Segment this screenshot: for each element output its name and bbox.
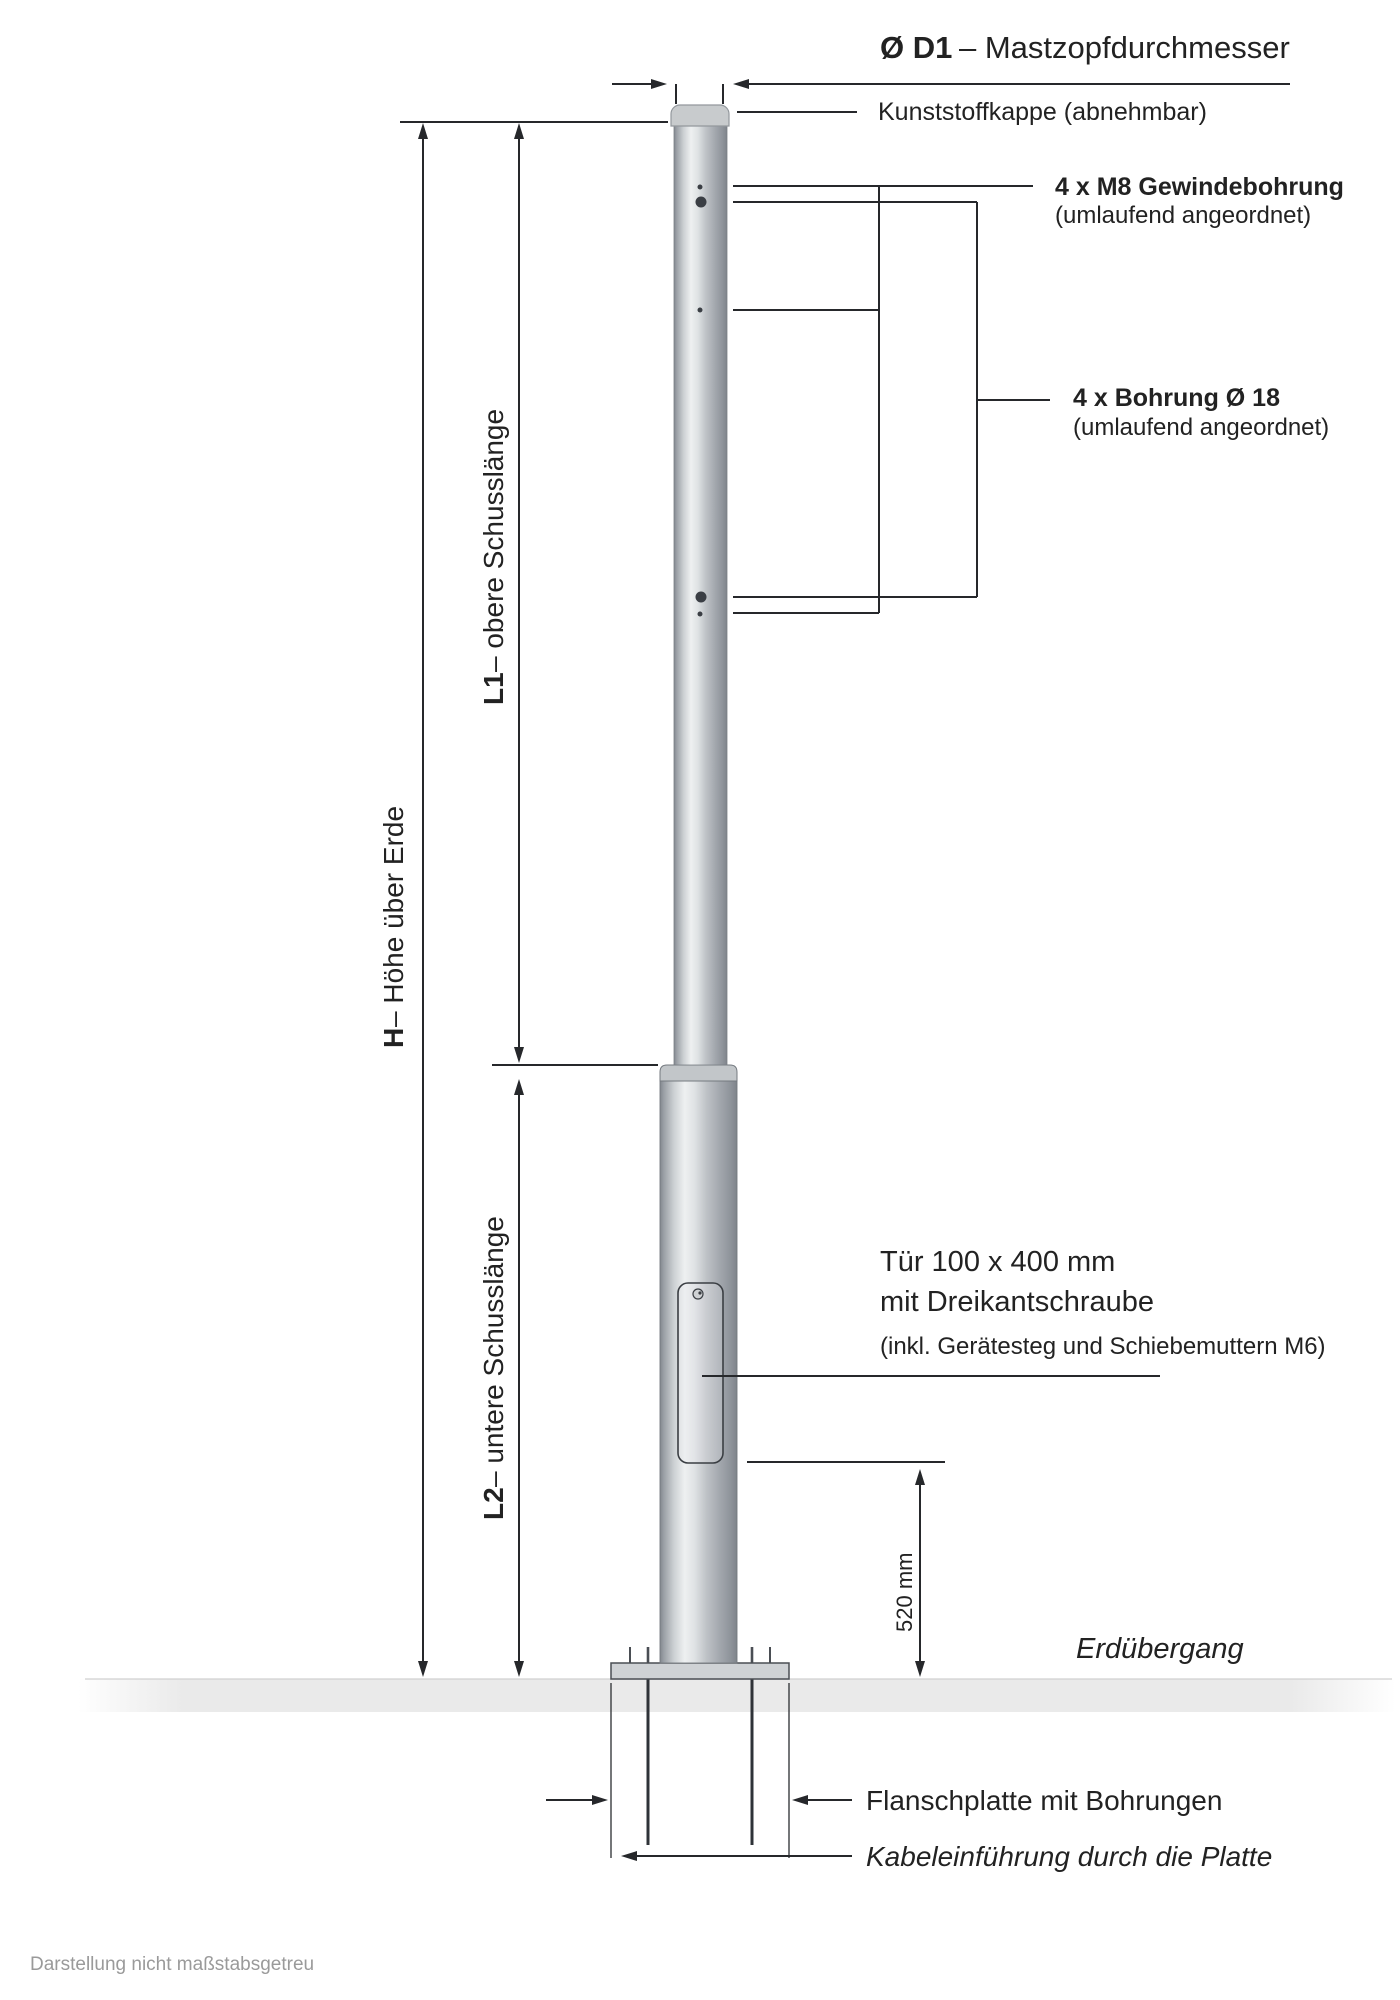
dim520-arrowhead-down <box>915 1661 925 1677</box>
service-door <box>678 1283 723 1463</box>
flange-arrowhead-left-pointing <box>792 1795 808 1805</box>
d1-arrowhead-left-pointing <box>733 79 749 89</box>
diagram-canvas: Ø D1 – Mastzopfdurchmesser Kunststoffkap… <box>0 0 1400 2000</box>
d1-arrowhead-right-pointing <box>651 79 667 89</box>
plastic-cap <box>671 105 729 126</box>
dim520-label: 520 mm <box>892 1553 917 1632</box>
ground-transition-label: Erdübergang <box>1076 1633 1244 1665</box>
cable-label: Kabeleinführung durch die Platte <box>866 1841 1272 1872</box>
m8-label-sub: (umlaufend angeordnet) <box>1055 202 1311 229</box>
door-label-line3: (inkl. Gerätesteg und Schiebemuttern M6) <box>880 1333 1326 1360</box>
door-label-line1: Tür 100 x 400 mm <box>880 1246 1115 1278</box>
l2-dimension-label: L2 – untere Schusslänge <box>478 1216 509 1520</box>
h-label-rest: – Höhe über Erde <box>378 806 409 1027</box>
bore-label-title: 4 x Bohrung Ø 18 <box>1073 384 1280 412</box>
m8-label-title: 4 x M8 Gewindebohrung <box>1055 173 1344 201</box>
l1-label-rest: – obere Schusslänge <box>478 409 509 672</box>
d1-title-rest: – Mastzopfdurchmesser <box>959 30 1290 65</box>
cable-arrowhead-left-pointing <box>621 1851 637 1861</box>
cable-label-group: Kabeleinführung durch die Platte <box>621 1841 1272 1872</box>
h-dimension-label: H – Höhe über Erde <box>378 806 409 1048</box>
scale-footnote: Darstellung nicht maßstabsgetreu <box>30 1954 314 1975</box>
dimension-520: 520 mm <box>747 1462 945 1677</box>
flange-label: Flanschplatte mit Bohrungen <box>866 1785 1222 1816</box>
ground <box>78 1679 1396 1712</box>
l2-label-bold: L2 <box>478 1487 509 1520</box>
l2-label-rest: – untere Schusslänge <box>478 1216 509 1487</box>
dim520-label-group: 520 mm <box>892 1553 917 1632</box>
l2-arrowhead-down <box>514 1661 524 1677</box>
bore-label-group: 4 x Bohrung Ø 18 (umlaufend angeordnet) <box>733 202 1329 597</box>
m8-hole-mid <box>698 308 703 313</box>
dimension-d1: Ø D1 – Mastzopfdurchmesser <box>612 30 1290 104</box>
ground-band <box>78 1679 1396 1712</box>
flange-arrowhead-right-pointing <box>592 1795 608 1805</box>
mast <box>660 105 737 1663</box>
dimension-h: H – Höhe über Erde <box>378 123 428 1677</box>
h-label-bold: H <box>378 1028 409 1048</box>
bore-hole-bottom <box>696 592 707 603</box>
flange-plate-body <box>611 1663 789 1679</box>
door-screw <box>693 1289 703 1299</box>
door-label-group: Tür 100 x 400 mm mit Dreikantschraube (i… <box>702 1246 1326 1376</box>
bore-label-sub: (umlaufend angeordnet) <box>1073 414 1329 441</box>
dimension-l2: L2 – untere Schusslänge <box>478 1079 524 1677</box>
h-arrowhead-down <box>418 1661 428 1677</box>
m8-hole-top <box>698 185 703 190</box>
l1-arrowhead-down <box>514 1047 524 1063</box>
cap-label-text: Kunststoffkappe (abnehmbar) <box>878 98 1207 126</box>
mast-spec-diagram: Ø D1 – Mastzopfdurchmesser Kunststoffkap… <box>0 0 1400 2000</box>
door-screw-center <box>698 1291 701 1294</box>
m8-hole-bottom <box>698 612 703 617</box>
joint-collar <box>660 1065 737 1081</box>
dimension-l1: L1 – obere Schusslänge <box>478 123 524 1063</box>
d1-title-bold: Ø D1 <box>880 30 952 65</box>
l1-dimension-label: L1 – obere Schusslänge <box>478 409 509 705</box>
bore-hole-top <box>696 197 707 208</box>
door-label-line2: mit Dreikantschraube <box>880 1286 1154 1318</box>
l1-label-bold: L1 <box>478 672 509 705</box>
cap-label: Kunststoffkappe (abnehmbar) <box>737 98 1207 126</box>
